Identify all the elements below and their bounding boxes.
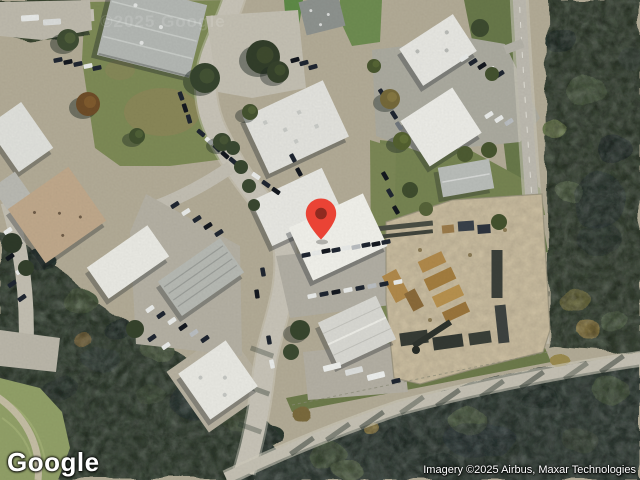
location-pin[interactable] [304,197,338,241]
pin-inner-circle [315,208,327,220]
map-viewport[interactable]: ©2025 Google Google Imagery ©2025 Airbus… [0,0,640,480]
google-logo[interactable]: Google [7,447,100,478]
location-pin-icon [304,197,338,241]
imagery-watermark: ©2025 Google [100,12,226,32]
attribution-text: Imagery ©2025 Airbus, Maxar Technologies [423,464,636,476]
